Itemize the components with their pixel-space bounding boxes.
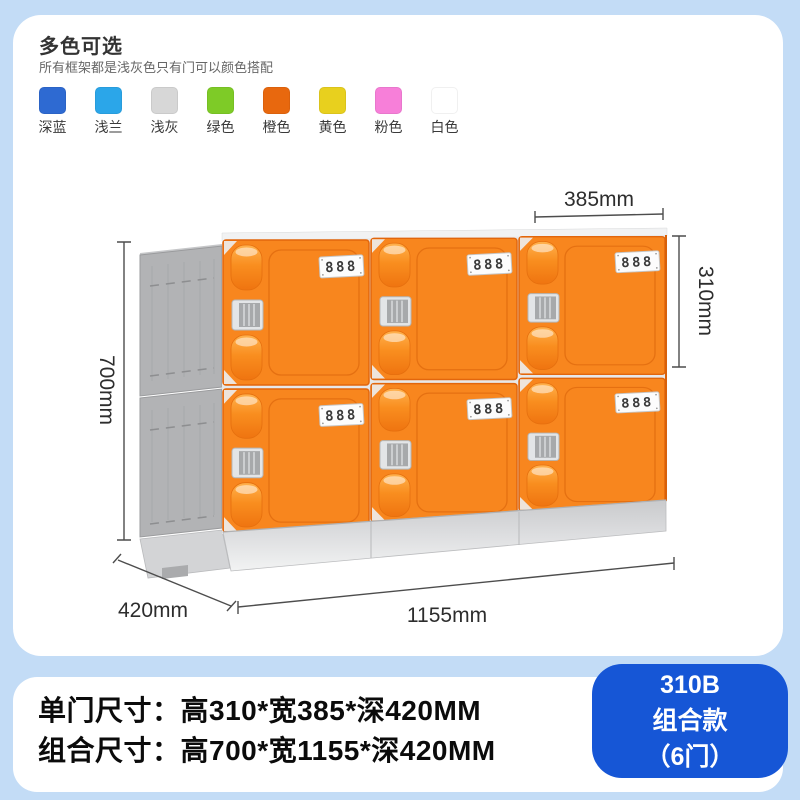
badge-model: 310B xyxy=(660,667,720,703)
product-badge: 310B 组合款 （6门） xyxy=(592,664,788,778)
dim-total-width-line xyxy=(238,563,674,607)
page-background: { "header": { "title": "多色可选", "subtitle… xyxy=(0,0,800,800)
dim-door-height-label: 310mm xyxy=(694,266,717,336)
badge-doors: （6门） xyxy=(646,739,735,775)
locker-side-panel xyxy=(140,244,230,579)
locker-door xyxy=(371,384,517,522)
spec-line-combined: 组合尺寸：高700*宽1155*深420MM xyxy=(38,729,496,769)
locker-door xyxy=(371,238,517,379)
locker-door xyxy=(223,240,369,385)
dim-door-width-label: 385mm xyxy=(564,188,634,211)
dim-total-height-label: 700mm xyxy=(95,355,118,425)
dim-depth-label: 420mm xyxy=(118,599,188,622)
locker-door xyxy=(519,237,665,375)
dim-total-width-label: 1155mm xyxy=(407,604,487,627)
locker-door xyxy=(223,389,369,532)
dim-door-width-line xyxy=(535,214,663,217)
badge-series: 组合款 xyxy=(652,703,727,739)
spec-line-single-door: 单门尺寸：高310*宽385*深420MM xyxy=(38,689,481,729)
locker-door xyxy=(519,378,665,510)
